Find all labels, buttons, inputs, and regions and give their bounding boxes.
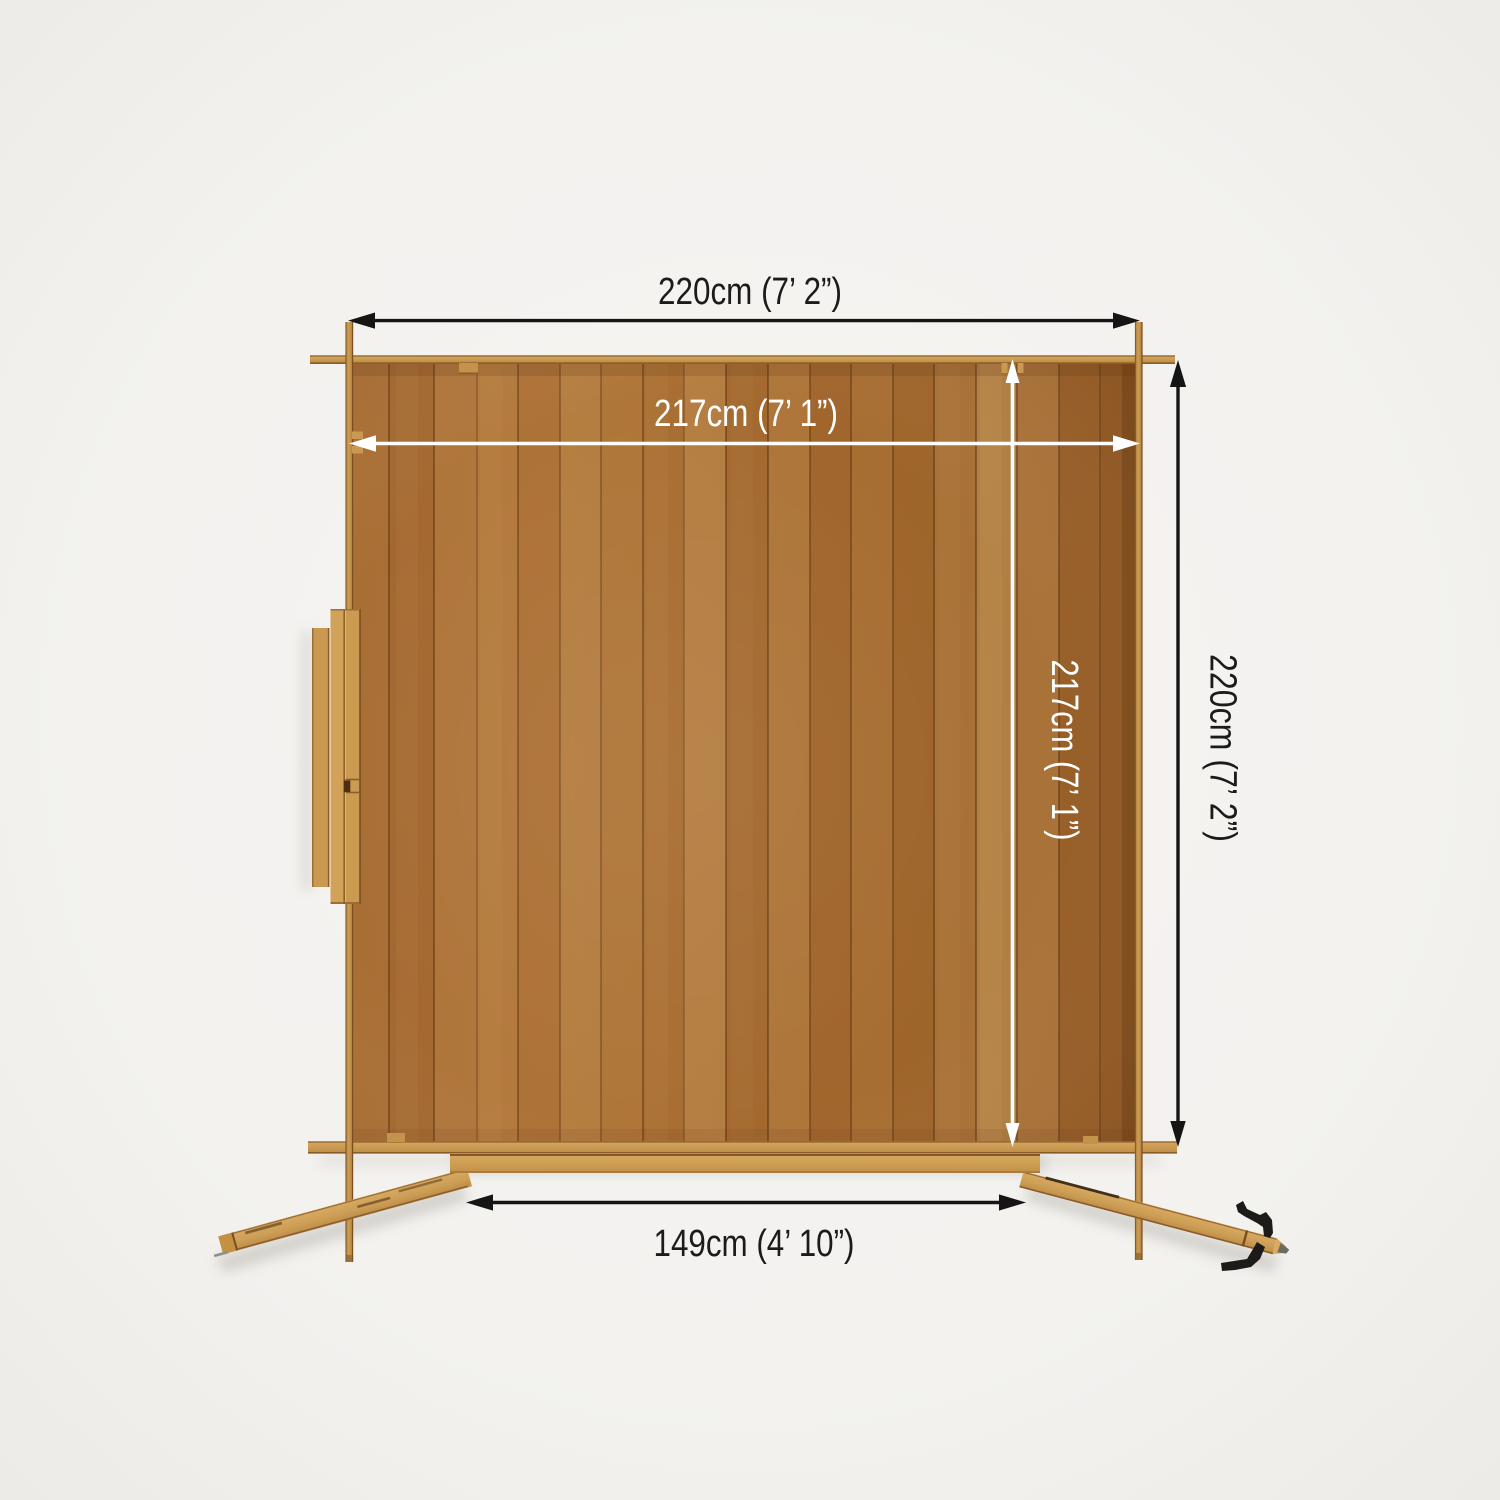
svg-text:217cm (7’ 1”): 217cm (7’ 1”) bbox=[1043, 660, 1085, 841]
svg-text:149cm (4’ 10”): 149cm (4’ 10”) bbox=[654, 1223, 855, 1265]
svg-text:217cm (7’ 1”): 217cm (7’ 1”) bbox=[654, 393, 838, 435]
svg-text:220cm (7’ 2”): 220cm (7’ 2”) bbox=[658, 271, 842, 313]
svg-text:220cm (7’ 2”): 220cm (7’ 2”) bbox=[1202, 654, 1244, 842]
